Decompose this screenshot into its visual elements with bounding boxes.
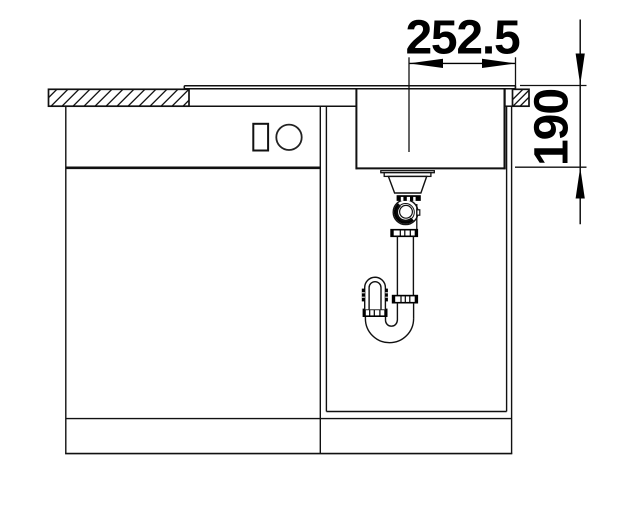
svg-text:190: 190 [526, 89, 579, 166]
svg-text:252.5: 252.5 [405, 12, 520, 65]
